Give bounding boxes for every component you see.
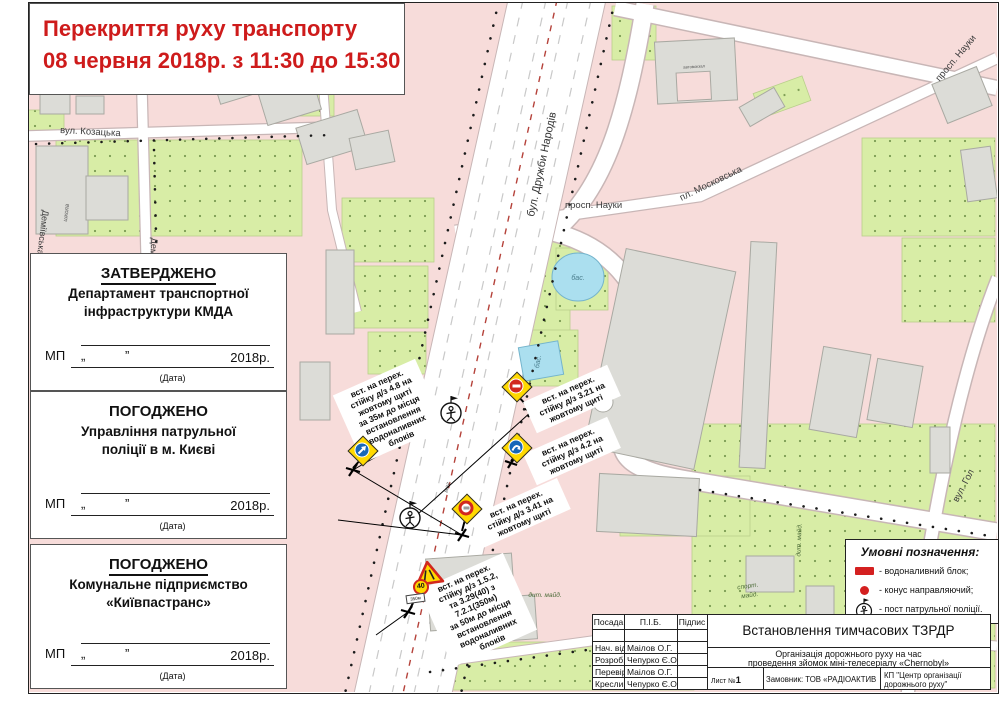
mp-label: МП <box>45 496 65 511</box>
stamp-org-line1: Управління патрульної <box>31 423 286 441</box>
legend-item-label: - пост патрульної поліції. <box>879 604 983 614</box>
column-header-pib: П.І.Б. <box>624 617 677 627</box>
signature-line <box>81 643 270 644</box>
date-line <box>71 515 274 516</box>
table-divider <box>593 665 707 666</box>
company-line2: дорожнього руху" <box>884 680 988 689</box>
restriction-icon <box>459 501 474 516</box>
approval-stamp-police: ПОГОДЖЕНО Управління патрульної поліції … <box>30 391 287 539</box>
guide-cone-icon <box>853 586 875 595</box>
row-role: Креслив. <box>595 679 624 689</box>
year-label: 2018р. <box>230 498 270 513</box>
row-role: Нач. від. <box>595 643 624 653</box>
table-divider <box>880 667 881 689</box>
doc-title: Встановлення тимчасових ТЗРДР <box>707 615 990 647</box>
playground-label-kids-2: дит. майд. <box>528 591 561 599</box>
approval-stamp-kyivpastrans: ПОГОДЖЕНО Комунальне підприємство «Київп… <box>30 544 287 689</box>
stamp-heading: ПОГОДЖЕНО <box>31 403 286 420</box>
detour-arrow-icon <box>355 443 370 458</box>
pool-label-a: бас. <box>571 274 584 282</box>
stamp-org-line2: інфраструктури КМДА <box>31 303 286 321</box>
quote-close: ” <box>125 348 129 363</box>
table-divider <box>763 667 764 689</box>
quote-open: „ <box>81 496 85 511</box>
column-header-pidpys: Підпис <box>677 617 707 627</box>
table-divider <box>593 653 707 654</box>
year-label: 2018р. <box>230 648 270 663</box>
stamp-org-line2: «Київпастранс» <box>31 594 286 612</box>
column-header-posada: Посада <box>593 617 624 627</box>
stamp-organization: Департамент транспортної інфраструктури … <box>31 285 286 320</box>
speed-limit-value: 40 <box>417 582 426 590</box>
table-divider <box>593 677 707 678</box>
traffic-closure-scheme-page: вул. Козацька Деміївська Деміївська бул.… <box>0 0 1000 707</box>
legend-item-label: - конус направляючий; <box>879 585 973 595</box>
table-divider <box>707 647 990 648</box>
closure-title-box: Перекриття руху транспорту 08 червня 201… <box>29 3 405 95</box>
table-divider <box>593 641 707 642</box>
year-label: 2018р. <box>230 350 270 365</box>
stamp-org-line1: Департамент транспортної <box>31 285 286 303</box>
row-name: Маілов О.Г. <box>627 643 677 653</box>
quote-open: „ <box>81 348 85 363</box>
stamp-org-line1: Комунальне підприємство <box>31 576 286 594</box>
row-name: Маілов О.Г. <box>627 667 677 677</box>
approval-stamp-approved: ЗАТВЕРДЖЕНО Департамент транспортної інф… <box>30 253 287 391</box>
sign-3-21-no-entry <box>501 371 531 401</box>
sign-3-41-restriction <box>451 493 481 523</box>
customer-cell: Замовник: ТОВ «РАДІОАКТИВ СІНЕМА» <box>766 675 878 684</box>
street-label-nauky: просп. Науки <box>565 200 622 211</box>
date-caption: (Дата) <box>71 521 274 531</box>
sheet-number: 1 <box>736 675 741 686</box>
mp-label: МП <box>45 348 65 363</box>
quote-close: ” <box>125 646 129 661</box>
quote-close: ” <box>125 496 129 511</box>
legend-box: Умовні позначення: - водоналивний блок; … <box>845 539 999 624</box>
closure-title-line1: Перекриття руху транспорту <box>43 16 357 42</box>
row-role: Перевір. <box>595 667 624 677</box>
playground-label-kids: дит. майд. <box>794 523 803 557</box>
sheet-number-cell: Лист №1 <box>711 675 761 686</box>
row-role: Розроб. <box>595 655 624 665</box>
quote-open: „ <box>81 646 85 661</box>
closure-title-line2: 08 червня 2018р. з 11:30 до 15:30 <box>43 48 400 74</box>
sign-4-2-turn <box>501 432 531 462</box>
legend-item-label: - водоналивний блок; <box>879 566 968 576</box>
date-line <box>71 367 274 368</box>
table-divider <box>593 629 707 630</box>
row-name: Чепурко Є.О. <box>627 679 677 689</box>
date-caption: (Дата) <box>71 671 274 681</box>
mp-label: МП <box>45 646 65 661</box>
date-caption: (Дата) <box>71 373 274 383</box>
date-line <box>71 665 274 666</box>
stamp-organization: Управління патрульної поліції в м. Києві <box>31 423 286 458</box>
turn-arrow-icon <box>509 440 524 455</box>
signature-line <box>81 345 270 346</box>
signature-line <box>81 493 270 494</box>
row-name: Чепурко Є.О. <box>627 655 677 665</box>
legend-title: Умовні позначення: <box>846 545 994 559</box>
water-fill-block-icon <box>853 567 875 575</box>
no-entry-icon <box>509 379 524 394</box>
stamp-organization: Комунальне підприємство «Київпастранс» <box>31 576 286 611</box>
sheet-label: Лист № <box>711 678 736 685</box>
sign-4-8-detour-left <box>347 435 377 465</box>
title-block: Посада П.І.Б. Підпис Нач. від. Маілов О.… <box>592 614 991 690</box>
doc-subtitle-line2: проведення зйомок міні-телесеріалу «Cher… <box>707 658 990 668</box>
stamp-org-line2: поліції в м. Києві <box>31 441 286 459</box>
stamp-heading: ЗАТВЕРДЖЕНО <box>31 265 286 282</box>
company-line1: КП "Центр організації <box>884 671 988 680</box>
stamp-heading: ПОГОДЖЕНО <box>31 556 286 573</box>
